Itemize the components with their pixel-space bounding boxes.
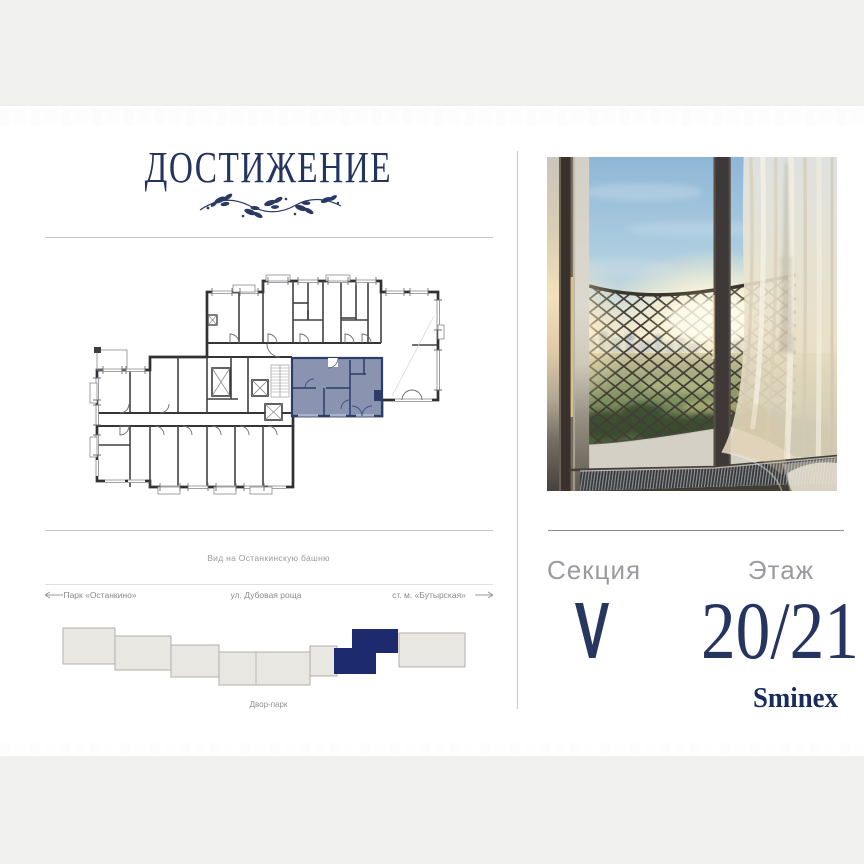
svg-text:Секция: Секция	[547, 555, 641, 585]
svg-text:Sminex: Sminex	[753, 682, 838, 714]
svg-text:Парк «Останкино»: Парк «Останкино»	[63, 590, 136, 600]
svg-text:ул. Дубовая роща: ул. Дубовая роща	[231, 590, 302, 600]
svg-text:ст. м. «Бутырская»: ст. м. «Бутырская»	[392, 590, 466, 600]
svg-text:20/21: 20/21	[701, 585, 859, 676]
svg-text:Этаж: Этаж	[748, 555, 814, 585]
